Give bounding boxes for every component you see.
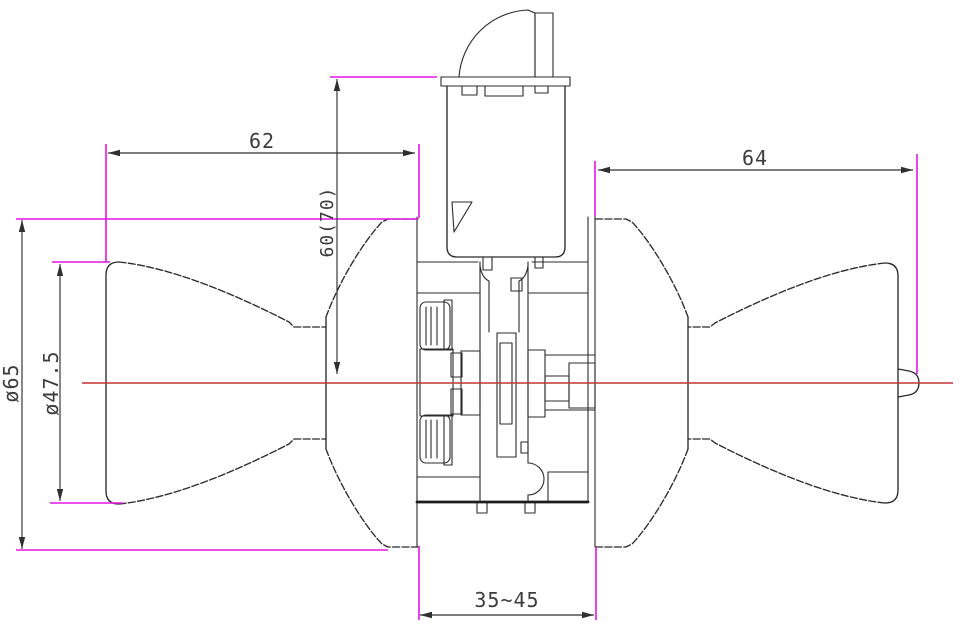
lockset-technical-drawing: 62 64 60(70) ø65 ø47.5 35~45 [0, 0, 964, 635]
arrow-dia47-down [57, 489, 63, 501]
arrow-dia47-up [57, 264, 63, 276]
arrow-dia65-up [19, 220, 25, 232]
left-knob-bottom-profile [119, 439, 326, 504]
left-rose-bottom-profile [326, 449, 418, 547]
spring-cage-top [420, 302, 450, 350]
left-knob-top-profile [119, 262, 326, 327]
tube-walls [480, 262, 528, 502]
latch-bar [545, 376, 569, 401]
cylinder-tail-walls [480, 266, 528, 332]
arrow-62-left [108, 150, 120, 156]
drawing-svg: 62 64 60(70) ø65 ø47.5 35~45 [0, 0, 964, 635]
chassis-top-plate [417, 262, 588, 293]
right-knob-bottom-profile [688, 439, 885, 503]
arrow-35-45-left [420, 612, 432, 618]
arrow-60-70-down [334, 362, 340, 374]
dimension-arrowheads [19, 79, 913, 618]
chassis-bottom-plate [417, 472, 588, 502]
cylinder-flange [441, 77, 570, 86]
orientation-triangle [452, 202, 472, 232]
flange-tabs [462, 86, 548, 96]
cylinder-bottom-tab-left [483, 257, 492, 270]
dim-label-64: 64 [742, 146, 768, 170]
dim-label-dia65: ø65 [0, 363, 23, 402]
arrow-35-45-right [582, 612, 594, 618]
dim-label-dia47: ø47.5 [39, 350, 63, 415]
key-blade-tab [535, 13, 553, 77]
chassis-foot-right [525, 502, 535, 513]
left-rose-top-profile [326, 219, 418, 317]
right-knob-top-profile [688, 263, 885, 327]
dimension-labels: 62 64 60(70) ø65 ø47.5 35~45 [0, 129, 768, 612]
spring-leaves-bottom [426, 420, 437, 458]
arrow-62-right [403, 150, 415, 156]
cam-foot [521, 442, 528, 453]
key-bow [459, 10, 535, 77]
lock-chassis [417, 215, 595, 547]
right-rose-bottom-profile [595, 449, 688, 547]
cylinder-body [447, 86, 565, 257]
part-outlines [106, 10, 919, 547]
spring-leaves-top [426, 307, 437, 345]
key-cylinder [441, 10, 570, 270]
extension-lines [16, 77, 917, 620]
tube-half-round-boss [528, 463, 544, 495]
arrow-64-left [598, 167, 610, 173]
arrow-dia65-down [19, 537, 25, 549]
dim-label-60-70: 60(70) [317, 186, 338, 257]
dimension-lines [22, 79, 913, 615]
spindle-tube [480, 262, 544, 502]
chassis-foot-left [477, 502, 487, 513]
dim-label-35-45: 35~45 [474, 588, 539, 612]
spring-retainer-top [444, 300, 452, 350]
arrow-60-70-up [334, 79, 340, 91]
arrow-64-right [901, 167, 913, 173]
dim-label-62: 62 [249, 129, 275, 153]
latch-bolt [569, 363, 595, 408]
spring-cage-bottom [420, 415, 450, 463]
right-rose-top-profile [595, 219, 688, 317]
spring-retainer-bottom [444, 415, 452, 465]
